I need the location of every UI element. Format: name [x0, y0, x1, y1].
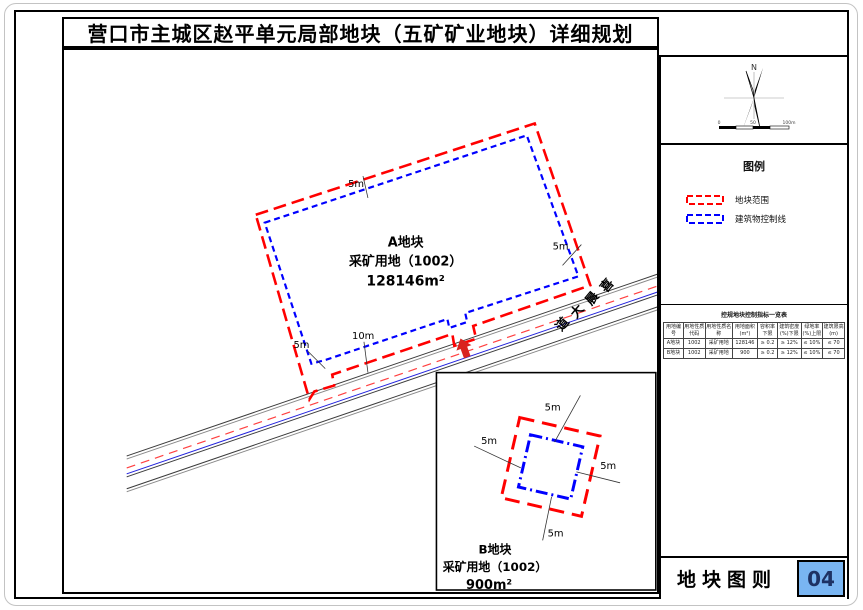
cell: ≥ 12% [778, 339, 802, 349]
svg-text:5m: 5m [481, 436, 497, 447]
legend-item-control-line: 建筑物控制线 [685, 211, 847, 226]
col-header: 建筑限高(m) [823, 323, 845, 339]
svg-text:10m: 10m [352, 331, 374, 342]
map-canvas: A地块 采矿用地（1002） 128146m² 5m 5m 5m 10m [62, 48, 659, 594]
col-header: 用地性质代码 [683, 323, 705, 339]
svg-text:5m: 5m [553, 242, 569, 253]
cell: 128146 [732, 339, 757, 349]
col-header: 建筑密度(%)下限 [778, 323, 802, 339]
svg-text:5m: 5m [548, 528, 564, 539]
sidebar: N 0 50 100m 图例 [659, 55, 847, 599]
legend-label: 地块范围 [735, 194, 769, 206]
svg-text:B地块: B地块 [479, 542, 512, 556]
svg-text:5m: 5m [545, 402, 561, 413]
control-line-sample-icon [685, 213, 725, 225]
scale-bar: 0 50 100m [718, 120, 796, 129]
sheet-title-bar: 营口市主城区赵平单元局部地块（五矿矿业地块）详细规划 [62, 17, 659, 48]
cell: 采矿用地 [705, 339, 732, 349]
cell: 900 [732, 349, 757, 359]
svg-text:900m²: 900m² [466, 578, 512, 592]
cell: ≤ 10% [801, 339, 823, 349]
plot-b-inset: 5m 5m 5m 5m B地块 采矿用地（1002） 900m² [436, 373, 655, 592]
col-header: 用地面积(m²) [732, 323, 757, 339]
cell: ≥ 12% [778, 349, 802, 359]
plan-sheet: 营口市主城区赵平单元局部地块（五矿矿业地块）详细规划 A地块 采矿用地（1002… [0, 0, 863, 610]
cell: A地块 [664, 339, 684, 349]
cell: ≥ 0.2 [758, 339, 778, 349]
table-row: B地块 1002 采矿用地 900 ≥ 0.2 ≥ 12% ≤ 10% ≤ 70 [664, 349, 845, 359]
svg-text:5m: 5m [293, 340, 309, 351]
svg-text:采矿用地（1002）: 采矿用地（1002） [442, 560, 548, 574]
legend-item-boundary: 地块范围 [685, 192, 847, 207]
road-name: 喜 晨 大 道 [552, 276, 617, 335]
svg-text:128146m²: 128146m² [366, 273, 444, 289]
boundary-line-sample-icon [685, 194, 725, 206]
cell: ≤ 70 [823, 349, 845, 359]
sheet-type-label: 地块图则 [661, 558, 795, 599]
cell: ≤ 70 [823, 339, 845, 349]
svg-text:采矿用地（1002）: 采矿用地（1002） [348, 253, 462, 269]
col-header: 容积率下限 [758, 323, 778, 339]
cell: 采矿用地 [705, 349, 732, 359]
cell: B地块 [664, 349, 684, 359]
indicator-table-zone: 控规地块控制指标一览表 用地编号 用地性质代码 用地性质名称 用地面积(m²) … [661, 305, 847, 558]
plot-a-label: A地块 采矿用地（1002） 128146m² [348, 235, 462, 290]
svg-text:100m: 100m [783, 120, 796, 126]
svg-text:道: 道 [552, 314, 573, 334]
col-header: 用地编号 [664, 323, 684, 339]
legend-title: 图例 [661, 158, 847, 174]
indicator-table: 用地编号 用地性质代码 用地性质名称 用地面积(m²) 容积率下限 建筑密度(%… [663, 322, 845, 359]
svg-text:喜: 喜 [597, 276, 618, 296]
svg-text:0: 0 [718, 120, 721, 126]
indicator-table-title: 控规地块控制指标一览表 [661, 310, 847, 319]
svg-text:N: N [751, 63, 757, 72]
table-header-row: 用地编号 用地性质代码 用地性质名称 用地面积(m²) 容积率下限 建筑密度(%… [664, 323, 845, 339]
svg-text:5m: 5m [600, 461, 616, 472]
cell: ≤ 10% [801, 349, 823, 359]
legend-label: 建筑物控制线 [735, 213, 786, 225]
table-row: A地块 1002 采矿用地 128146 ≥ 0.2 ≥ 12% ≤ 10% ≤… [664, 339, 845, 349]
cell: ≥ 0.2 [758, 349, 778, 359]
north-arrow-icon: N 0 50 100m [661, 57, 847, 143]
legend: 图例 地块范围 建筑物控制线 [661, 145, 847, 305]
svg-text:A地块: A地块 [388, 235, 424, 251]
sheet-title: 营口市主城区赵平单元局部地块（五矿矿业地块）详细规划 [88, 18, 634, 47]
sheet-titleblock: 地块图则 04 [661, 558, 847, 599]
cell: 1002 [683, 349, 705, 359]
svg-text:50: 50 [750, 120, 756, 126]
plan-drawing: A地块 采矿用地（1002） 128146m² 5m 5m 5m 10m [64, 50, 657, 592]
col-header: 用地性质名称 [705, 323, 732, 339]
col-header: 绿地率(%)上限 [801, 323, 823, 339]
svg-text:5m: 5m [348, 179, 364, 190]
compass-box: N 0 50 100m [661, 55, 847, 145]
cell: 1002 [683, 339, 705, 349]
sheet-number-badge[interactable]: 04 [797, 560, 845, 597]
